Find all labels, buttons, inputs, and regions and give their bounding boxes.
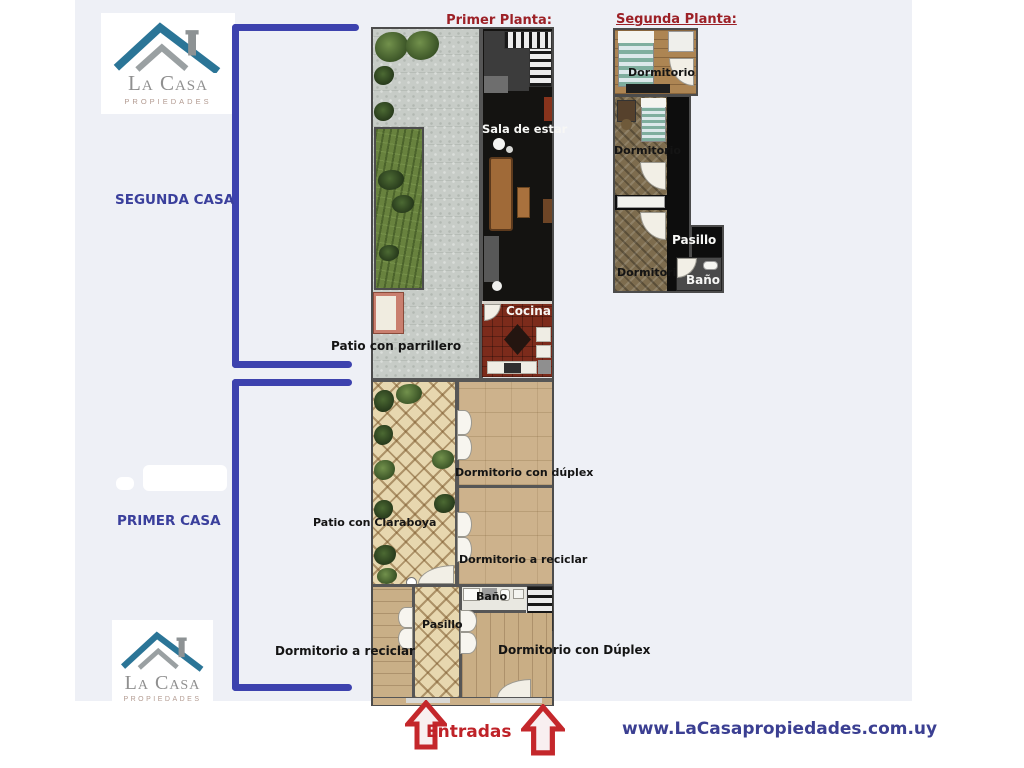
toilet-icon bbox=[703, 261, 718, 270]
patio-claraboya-label: Patio con Claraboya bbox=[313, 517, 436, 530]
chair bbox=[621, 119, 632, 130]
primer-casa-label: PRIMER CASA bbox=[117, 514, 221, 530]
dormitorio-reciclar-2-label: Dormitorio a reciclar bbox=[275, 645, 415, 659]
dormitorio-reciclar-floor bbox=[459, 488, 552, 584]
dormitorio-duplex-label: Dormitorio con dúplex bbox=[455, 467, 593, 480]
primer-casa-bracket-vertical bbox=[232, 379, 239, 691]
floorplan-page: La Casa PROPIEDADES La Casa PROPIEDADES … bbox=[0, 0, 1024, 768]
house-roof-icon bbox=[119, 626, 207, 672]
erased-smudge bbox=[116, 477, 134, 490]
segunda-casa-label: SEGUNDA CASA bbox=[115, 193, 234, 209]
entradas-label: Entradas bbox=[426, 723, 511, 743]
shelf bbox=[617, 196, 665, 208]
primer-casa-bracket-bottom bbox=[232, 684, 352, 691]
door-leaf-icon bbox=[398, 607, 413, 628]
sofa bbox=[489, 157, 513, 231]
door-leaf-icon bbox=[457, 512, 472, 537]
logo-subtitle: PROPIEDADES bbox=[112, 696, 213, 703]
pasillo-label: Pasillo bbox=[422, 619, 463, 632]
stairs-icon bbox=[504, 31, 552, 49]
logo-title: La Casa bbox=[112, 672, 213, 695]
segunda-pasillo-label: Pasillo bbox=[672, 234, 716, 248]
house-roof-icon bbox=[110, 17, 226, 73]
sala-de-estar-label: Sala de estar bbox=[482, 123, 567, 136]
entry-gap bbox=[490, 698, 542, 703]
cabinet-red bbox=[544, 97, 552, 121]
door-leaf-icon bbox=[460, 632, 477, 654]
logo-title: La Casa bbox=[101, 71, 235, 96]
segunda-dormitorio-3-label: Dormitorio bbox=[617, 267, 684, 280]
dormitorio-reciclar-label: Dormitorio a reciclar bbox=[459, 554, 587, 567]
website-url: www.LaCasapropiedades.com.uy bbox=[622, 720, 937, 740]
segunda-casa-bracket-bottom bbox=[232, 361, 352, 368]
pasillo-floor bbox=[415, 587, 459, 698]
segunda-dormitorio-2-label: Dormitorio bbox=[614, 145, 681, 158]
lamp-icon bbox=[493, 138, 505, 150]
logo-subtitle: PROPIEDADES bbox=[101, 97, 235, 106]
bed-pillow bbox=[618, 31, 654, 43]
segunda-casa-bracket-top bbox=[232, 24, 359, 31]
bed-pillow bbox=[641, 98, 666, 107]
segunda-dormitorio-1-label: Dormitorio bbox=[628, 67, 695, 80]
stove bbox=[504, 363, 521, 373]
door-leaf-icon bbox=[457, 410, 472, 435]
logo-top: La Casa PROPIEDADES bbox=[101, 13, 235, 114]
door-leaf-icon bbox=[457, 435, 472, 460]
coffee-table bbox=[517, 187, 530, 218]
parrilla-bbq-top bbox=[376, 296, 396, 330]
primer-casa-bracket-top bbox=[232, 379, 352, 386]
segunda-planta-title: Segunda Planta: bbox=[616, 13, 737, 28]
dormitorio-duplex-2-label: Dormitorio con Dúplex bbox=[498, 644, 650, 658]
tv-stand bbox=[484, 236, 499, 282]
cabinet-block bbox=[484, 76, 508, 93]
cocina-label: Cocina bbox=[506, 305, 551, 319]
lamp-icon bbox=[492, 281, 502, 291]
patio-parrillero-label: Patio con parrillero bbox=[331, 340, 461, 354]
closet bbox=[668, 31, 694, 52]
logo-bottom: La Casa PROPIEDADES bbox=[112, 620, 213, 758]
stairs-icon bbox=[529, 48, 552, 87]
erased-smudge bbox=[143, 465, 227, 491]
counter bbox=[536, 327, 551, 342]
shelf-brown bbox=[543, 199, 552, 223]
counter bbox=[536, 345, 551, 358]
lamp-icon bbox=[506, 146, 513, 153]
appliance bbox=[538, 360, 551, 374]
dresser bbox=[626, 84, 670, 93]
segunda-bano-label: Baño bbox=[686, 274, 720, 288]
sink-icon bbox=[513, 589, 524, 599]
bano-label: Baño bbox=[476, 591, 507, 604]
entrada-arrow-icon bbox=[521, 704, 565, 756]
